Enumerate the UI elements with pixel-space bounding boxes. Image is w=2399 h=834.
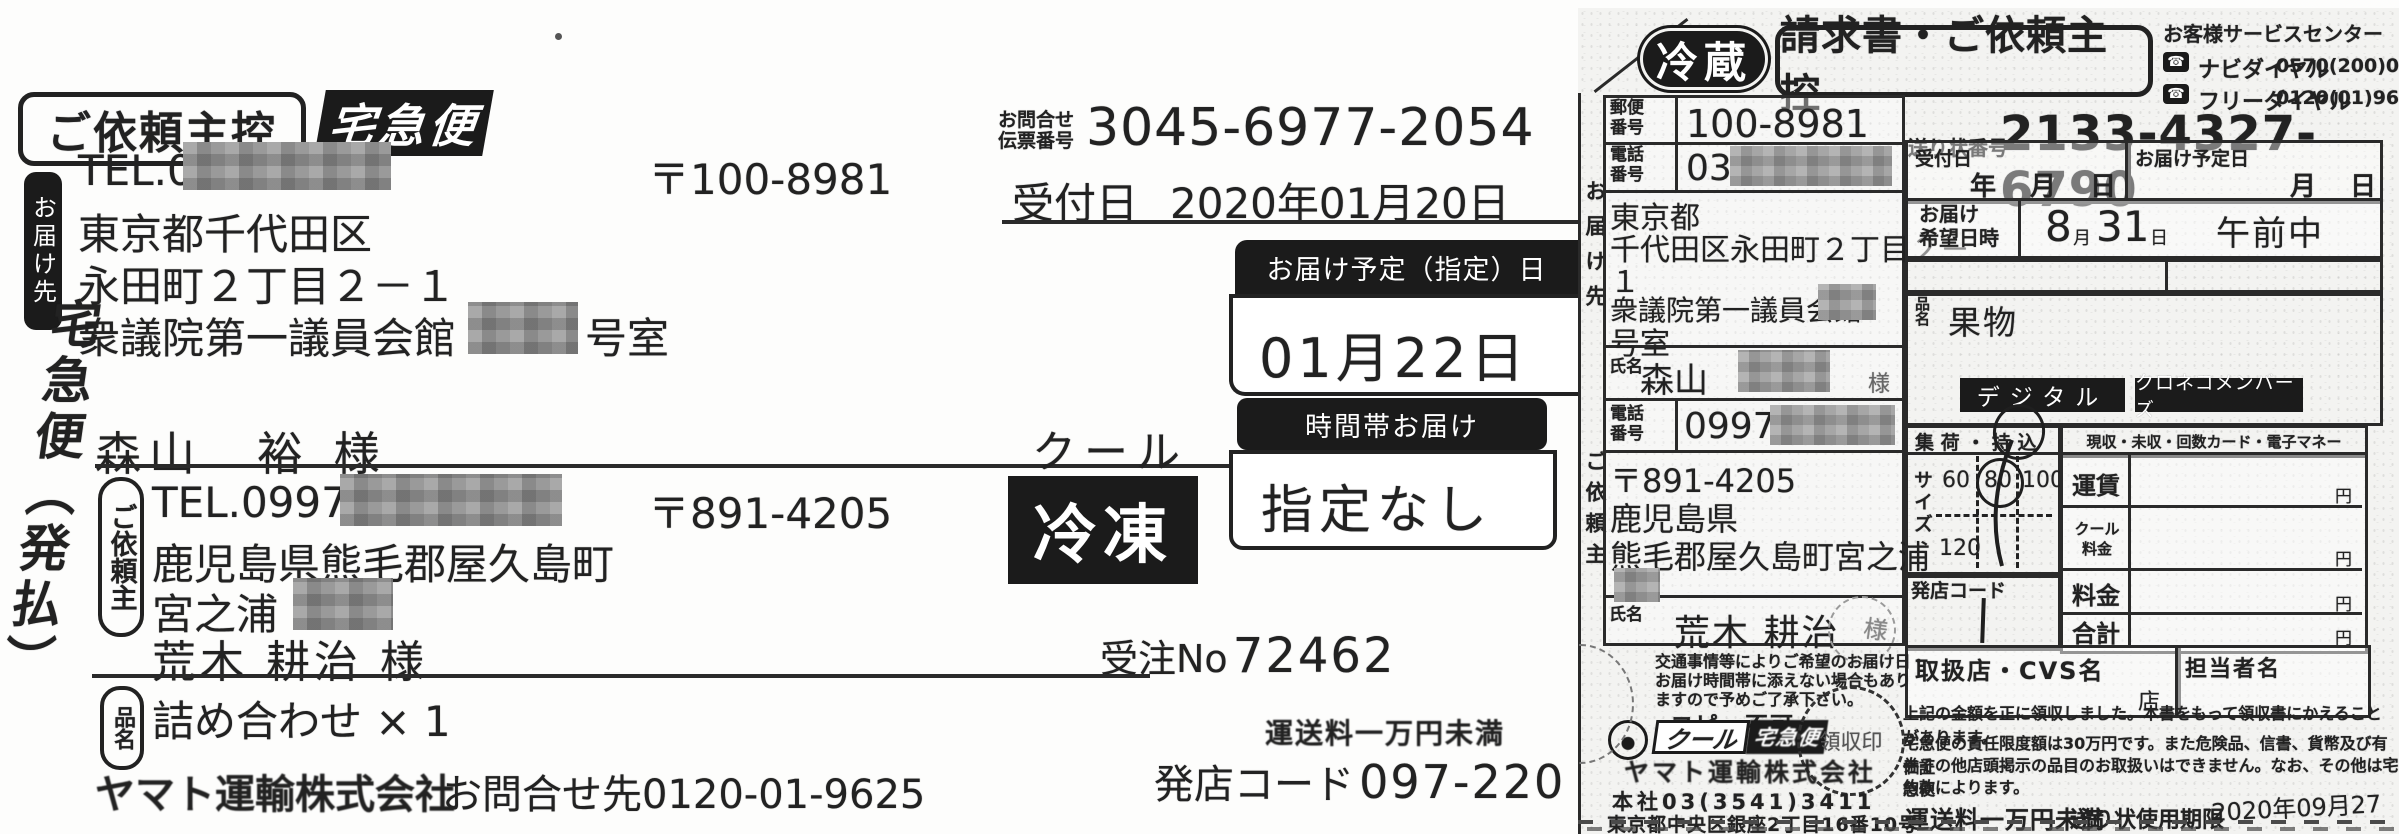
request-label-line2: 希望日時 [1919, 226, 1999, 250]
fee-label-freight: 運賃 [2066, 466, 2126, 501]
left-fare-note: 運送料一万円未満 [1265, 712, 1505, 752]
kuroneko-members-badge: クロネコメンバーズ [2135, 378, 2303, 412]
store-code-label: 発店コード [1154, 762, 1354, 808]
payment-header: 現収・未収・回数カード・電子マネー [2086, 431, 2341, 452]
item-label: 品名 [1912, 296, 1933, 326]
col-line [2165, 256, 2168, 290]
service-center-title: お客様サービスセンター [2163, 18, 2383, 47]
inquiry-label-line2: 伝票番号 [998, 131, 1074, 152]
left-store-code: 発店コード 097-220 [1154, 752, 1565, 810]
left-sender-tel: TEL.0997- [152, 478, 363, 527]
row-line [1603, 450, 1905, 453]
left-dest-postal: 〒100-8981 [648, 146, 892, 207]
time-slot-value: 指定なし [1261, 468, 1493, 543]
request-slot: 午前中 [2216, 206, 2324, 255]
request-day-unit: 日 [2150, 224, 2168, 250]
perforation-strip [1578, 820, 2399, 824]
left-time-slot-badge: 時間帯お届け [1237, 398, 1547, 450]
perforation-strip [1587, 827, 2399, 831]
left-sender-name: 荒木 耕治 様 [152, 626, 428, 690]
left-company-contact: お問合せ先0120-01-9625 [442, 762, 925, 820]
dest-postal-label: 郵便番号 [1610, 98, 1650, 139]
left-time-slot-box: 指定なし [1229, 450, 1557, 550]
left-cool-type-badge: 冷凍 [1008, 476, 1198, 584]
left-inquiry-no: 3045-6977-2054 [1086, 98, 1535, 158]
sender-name-label: 氏名 [1609, 600, 1643, 625]
col-line [1675, 398, 1678, 450]
staff-label: 担当者名 [2185, 651, 2281, 683]
left-vertical-service-label: 宅急便（発払） [0, 298, 112, 778]
left-company: ヤマト運輸株式会社 [95, 762, 455, 820]
redacted-dest-name [1738, 350, 1830, 392]
left-slip: ご依頼主控 宅急便 お届け先 TEL.03 〒100-8981 東京都千代田区 … [0, 0, 1578, 834]
size-label: サイズ [1909, 470, 1936, 536]
fees-row-line [2060, 568, 2362, 571]
cool-badge-left: クール [1652, 720, 1751, 754]
redacted-sender-banchi [1614, 568, 1660, 602]
digital-badge: デジタル [1960, 378, 2125, 412]
dest-postal-value: 100-8981 [1686, 102, 1869, 146]
right-company: ヤマト運輸株式会社 [1624, 753, 1876, 789]
left-item-value: 詰め合わせ × 1 [152, 688, 451, 749]
free-dial-icon: ☎ [2163, 84, 2189, 104]
col-line [1675, 95, 1678, 190]
left-item-side-label: 品名 [100, 686, 144, 770]
right-store-code-label: 発店コード [1911, 576, 2006, 603]
redacted-dest-room [468, 302, 578, 354]
sender-tel-value: 0997 [1684, 406, 1776, 447]
fee-label-charge: 料金 [2066, 576, 2126, 611]
left-inquiry-label: お問合せ 伝票番号 [998, 110, 1074, 152]
delivery-date-value: 01月22日 [1259, 314, 1528, 393]
chilled-badge: 冷蔵 [1640, 28, 1768, 90]
request-day-num: 31 [2096, 202, 2149, 251]
left-sender-postal: 〒891-4205 [648, 480, 892, 541]
left-cool-label: クール [1032, 416, 1188, 480]
redacted-dest-room [1818, 284, 1876, 320]
redacted-sender-tel [340, 474, 562, 526]
scheduled-label: お届け予定日 [2135, 144, 2249, 171]
request-month-num: 8 [2045, 202, 2072, 251]
divider [1002, 220, 1578, 224]
left-delivery-date-badge: お届け予定（指定）日 [1235, 240, 1578, 294]
phone-icon: ☎ [2163, 52, 2189, 72]
inquiry-label-line1: お問合せ [998, 110, 1074, 131]
redacted-dest-tel [183, 142, 391, 190]
left-dest-addr3: 衆議院第一議員会館 [78, 305, 456, 366]
left-sender-side-label: ご依頼主 [98, 477, 144, 637]
dest-name-label: 氏名 [1609, 352, 1643, 377]
scanned-shipping-slips: ご依頼主控 宅急便 お届け先 TEL.03 〒100-8981 東京都千代田区 … [0, 0, 2399, 834]
dest-tel-value: 03 [1686, 148, 1732, 189]
redacted-sender-tel [1770, 405, 1895, 445]
redacted-dest-tel [1730, 146, 1892, 186]
col-line [2018, 198, 2021, 256]
sender-tel-label: 電話番号 [1610, 404, 1650, 445]
fee-unit-charge: 円 [2335, 590, 2352, 615]
fee-label-total: 合計 [2066, 614, 2126, 649]
request-month-unit: 月 [2073, 224, 2091, 250]
right-copy-label: 請求書・ご依頼主控 [1775, 25, 2153, 97]
fee-label-cool: クール料金 [2068, 520, 2126, 559]
receipt-stamp-label: 領収印 [1820, 726, 1883, 756]
handling-store-label: 取扱店・CVS名 [1915, 651, 2104, 686]
store-code-value: 097-220 [1359, 755, 1565, 809]
accept-label: 受付日 [1915, 144, 1972, 171]
fees-col-line [2128, 452, 2131, 648]
order-value: 72462 [1233, 628, 1396, 684]
liability-line3: 約款によります。 [1903, 774, 2029, 798]
divider [92, 674, 1150, 678]
fees-row-line [2060, 505, 2362, 508]
left-dest-addr3-suffix: 号室 [585, 305, 669, 366]
fee-unit-cool: 円 [2335, 545, 2352, 570]
left-delivery-date-box: 01月22日 [1229, 294, 1582, 396]
pen-stroke [1970, 436, 2040, 571]
size-60: 60 [1942, 468, 1970, 493]
request-label-line1: お届け [1919, 202, 1999, 226]
dest-name-value: 森山 [1640, 353, 1708, 402]
dest-tel-label: 電話番号 [1610, 145, 1650, 186]
request-label: お届け 希望日時 [1919, 202, 1999, 250]
redacted-sender-banchi [293, 578, 393, 630]
navi-dial-number: 0570(200)000 [2276, 55, 2399, 77]
right-slip: 冷蔵 請求書・ご依頼主控 お客様サービスセンター ☎ ナビダイヤル 0570(2… [1578, 8, 2399, 834]
scan-speck [555, 33, 562, 40]
fee-unit-freight: 円 [2335, 482, 2352, 507]
item-value: 果物 [1948, 296, 2018, 344]
dest-honorific: 様 [1868, 366, 1890, 398]
